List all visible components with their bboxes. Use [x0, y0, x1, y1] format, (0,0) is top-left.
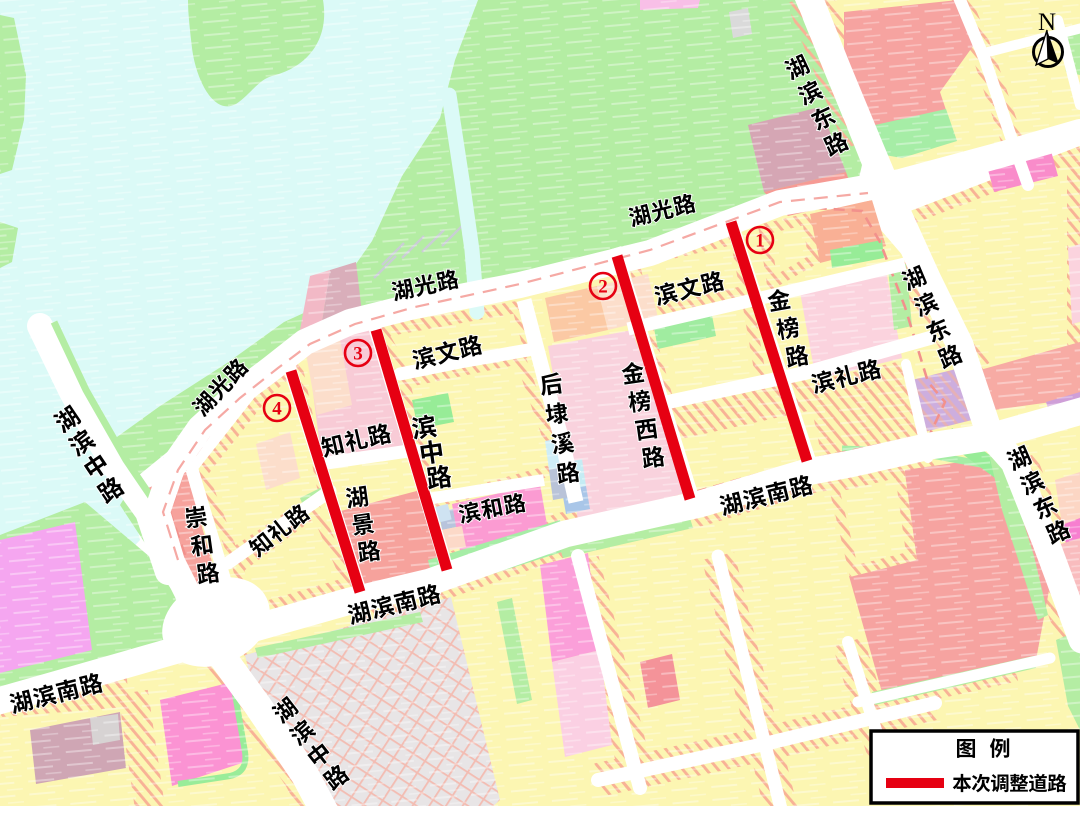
svg-text:1: 1 [755, 231, 765, 252]
svg-text:4: 4 [272, 399, 282, 420]
svg-text:3: 3 [353, 344, 363, 365]
svg-text:2: 2 [598, 277, 608, 298]
